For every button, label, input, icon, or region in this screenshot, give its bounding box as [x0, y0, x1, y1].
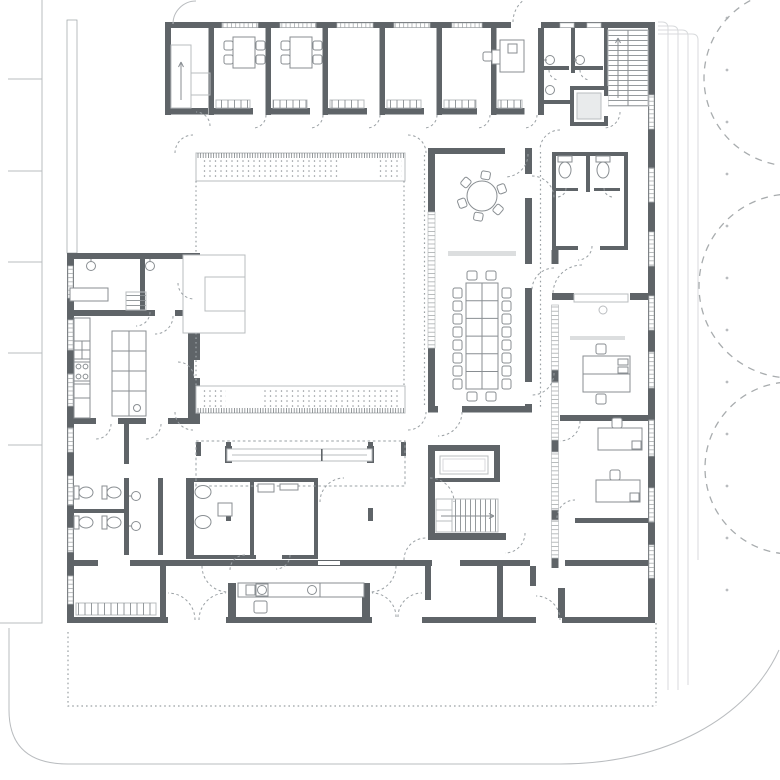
- radiators-top-wing: [216, 100, 522, 108]
- toilet: [74, 486, 93, 499]
- toilet: [102, 486, 121, 499]
- window: [428, 212, 435, 348]
- bar-counter: [238, 583, 364, 613]
- basin: [195, 486, 211, 499]
- elevator: [570, 86, 608, 126]
- sink: [574, 56, 585, 65]
- toilet: [74, 516, 93, 529]
- window: [337, 23, 373, 28]
- window: [649, 232, 654, 266]
- stair-northeast-main: [608, 30, 648, 106]
- desk-office-1: [224, 37, 265, 68]
- window: [394, 23, 430, 28]
- wall-south: [67, 617, 655, 623]
- elevator-cab: [577, 93, 601, 119]
- boundary-dots-east: [726, 17, 729, 592]
- toilet: [596, 156, 610, 178]
- window: [452, 23, 482, 28]
- floor-plan-canvas: [0, 0, 780, 780]
- window: [552, 382, 559, 440]
- office-east-b: [596, 418, 642, 502]
- toilet: [102, 516, 121, 529]
- road-edge-west: [0, 0, 42, 623]
- window: [560, 23, 574, 28]
- window: [649, 296, 654, 330]
- hall-south-band: [196, 386, 405, 413]
- conference-table: [453, 271, 511, 401]
- office-east-a: [570, 294, 630, 404]
- window: [222, 23, 258, 28]
- stage-element: [183, 255, 245, 333]
- window: [68, 528, 73, 552]
- stair-mini-west: [126, 292, 146, 310]
- sink: [87, 259, 96, 271]
- basin: [195, 516, 211, 529]
- facade-offset-lines: [658, 22, 698, 690]
- freestanding-wall-nw: [67, 20, 77, 253]
- conference-chairs-left: [453, 288, 462, 389]
- window: [552, 452, 559, 510]
- window: [649, 420, 654, 456]
- sideboard: [448, 251, 516, 256]
- road-curve-south: [9, 628, 779, 764]
- conference-chairs-right: [502, 288, 511, 389]
- window: [649, 488, 654, 522]
- tree-crown: [705, 382, 780, 554]
- trees: [699, 0, 780, 554]
- hall-north-band: [196, 153, 405, 181]
- window: [552, 520, 559, 558]
- window: [649, 352, 654, 388]
- stair-south-secondary: [436, 456, 498, 532]
- sink: [129, 492, 141, 501]
- desk-office-6: [483, 40, 524, 72]
- window: [68, 428, 73, 452]
- sink: [544, 56, 555, 65]
- interior-walls: [67, 28, 648, 623]
- shelf-strip-southwest: [76, 603, 156, 615]
- window: [68, 476, 73, 505]
- floor-plan-drawing: [0, 0, 780, 780]
- sink: [129, 522, 141, 531]
- window: [68, 374, 73, 406]
- window: [552, 305, 559, 370]
- window: [649, 168, 654, 202]
- window: [587, 23, 601, 28]
- window: [280, 23, 316, 28]
- parking-ticks: [8, 79, 42, 445]
- desk-office-2: [281, 37, 322, 68]
- tree-crown: [704, 0, 780, 166]
- window: [649, 545, 654, 578]
- sink: [146, 259, 155, 271]
- window: [68, 576, 73, 604]
- wall-annex-west: [165, 22, 171, 115]
- window: [649, 95, 654, 129]
- window: [68, 320, 73, 350]
- round-table: [448, 171, 516, 256]
- property-boundary-dotted: [68, 623, 656, 706]
- anteroom-table: [70, 288, 108, 301]
- tree-crown: [699, 194, 780, 378]
- stair-northwest: [171, 45, 210, 108]
- toilet: [558, 156, 572, 178]
- sink: [546, 86, 555, 95]
